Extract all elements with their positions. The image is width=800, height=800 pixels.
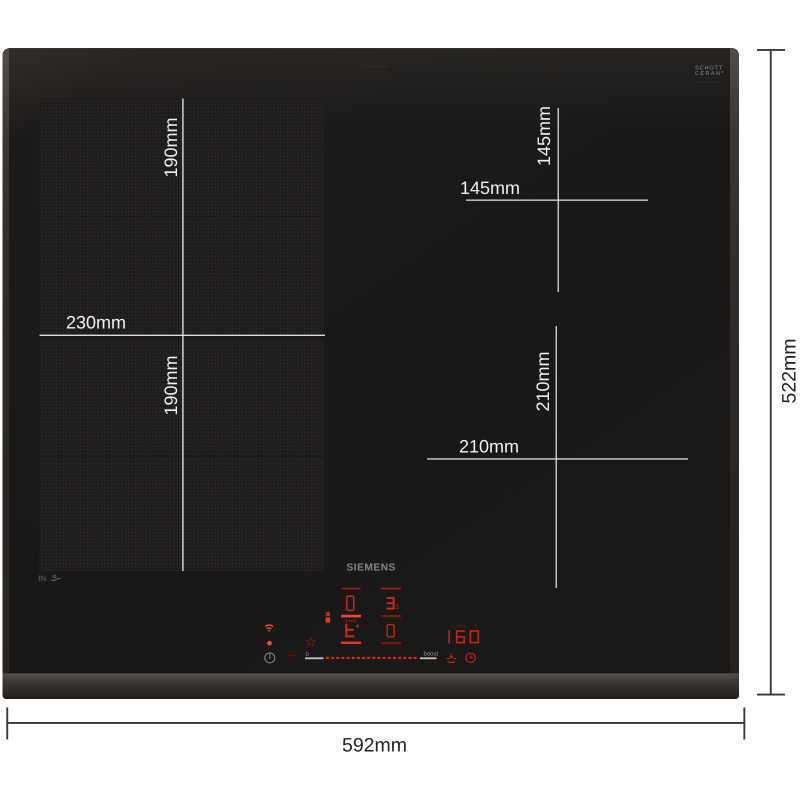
svg-text:190mm: 190mm (161, 117, 181, 177)
svg-text:min: min (457, 623, 465, 628)
svg-text:145mm: 145mm (460, 178, 520, 198)
svg-text:EX845LX34E: EX845LX34E (362, 64, 390, 69)
svg-text:CERAN®: CERAN® (695, 70, 725, 77)
svg-text:145mm: 145mm (534, 106, 554, 166)
svg-text:boost: boost (424, 651, 439, 658)
svg-text:592mm: 592mm (342, 735, 407, 757)
svg-text:IN: IN (38, 574, 46, 583)
svg-text:5: 5 (396, 604, 400, 611)
svg-text:230mm: 230mm (66, 313, 126, 333)
svg-text:SIEMENS: SIEMENS (347, 563, 396, 574)
svg-text:210mm: 210mm (459, 437, 519, 457)
svg-text:190mm: 190mm (161, 355, 181, 415)
svg-text:MADE IN GERMANY: MADE IN GERMANY (695, 81, 719, 84)
svg-text:°C: °C (473, 623, 479, 628)
svg-text:522mm: 522mm (779, 338, 800, 403)
svg-text:210mm: 210mm (533, 351, 553, 411)
